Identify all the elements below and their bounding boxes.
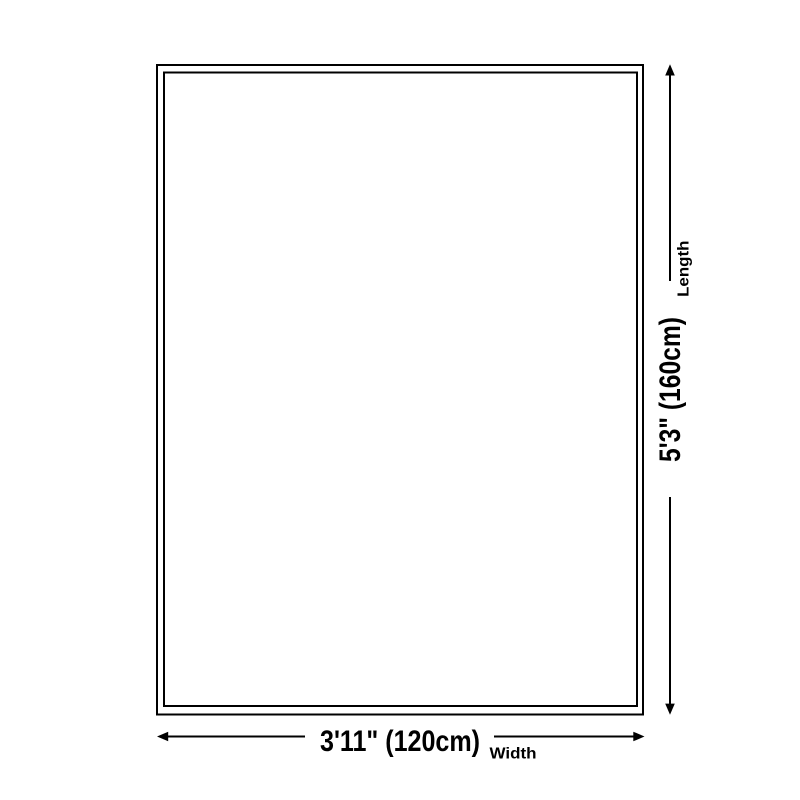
svg-text:5'3" (160cm): 5'3" (160cm)	[654, 317, 687, 462]
svg-text:3'11" (120cm): 3'11" (120cm)	[320, 725, 480, 758]
svg-text:Length: Length	[676, 241, 693, 297]
svg-text:Width: Width	[490, 746, 537, 763]
